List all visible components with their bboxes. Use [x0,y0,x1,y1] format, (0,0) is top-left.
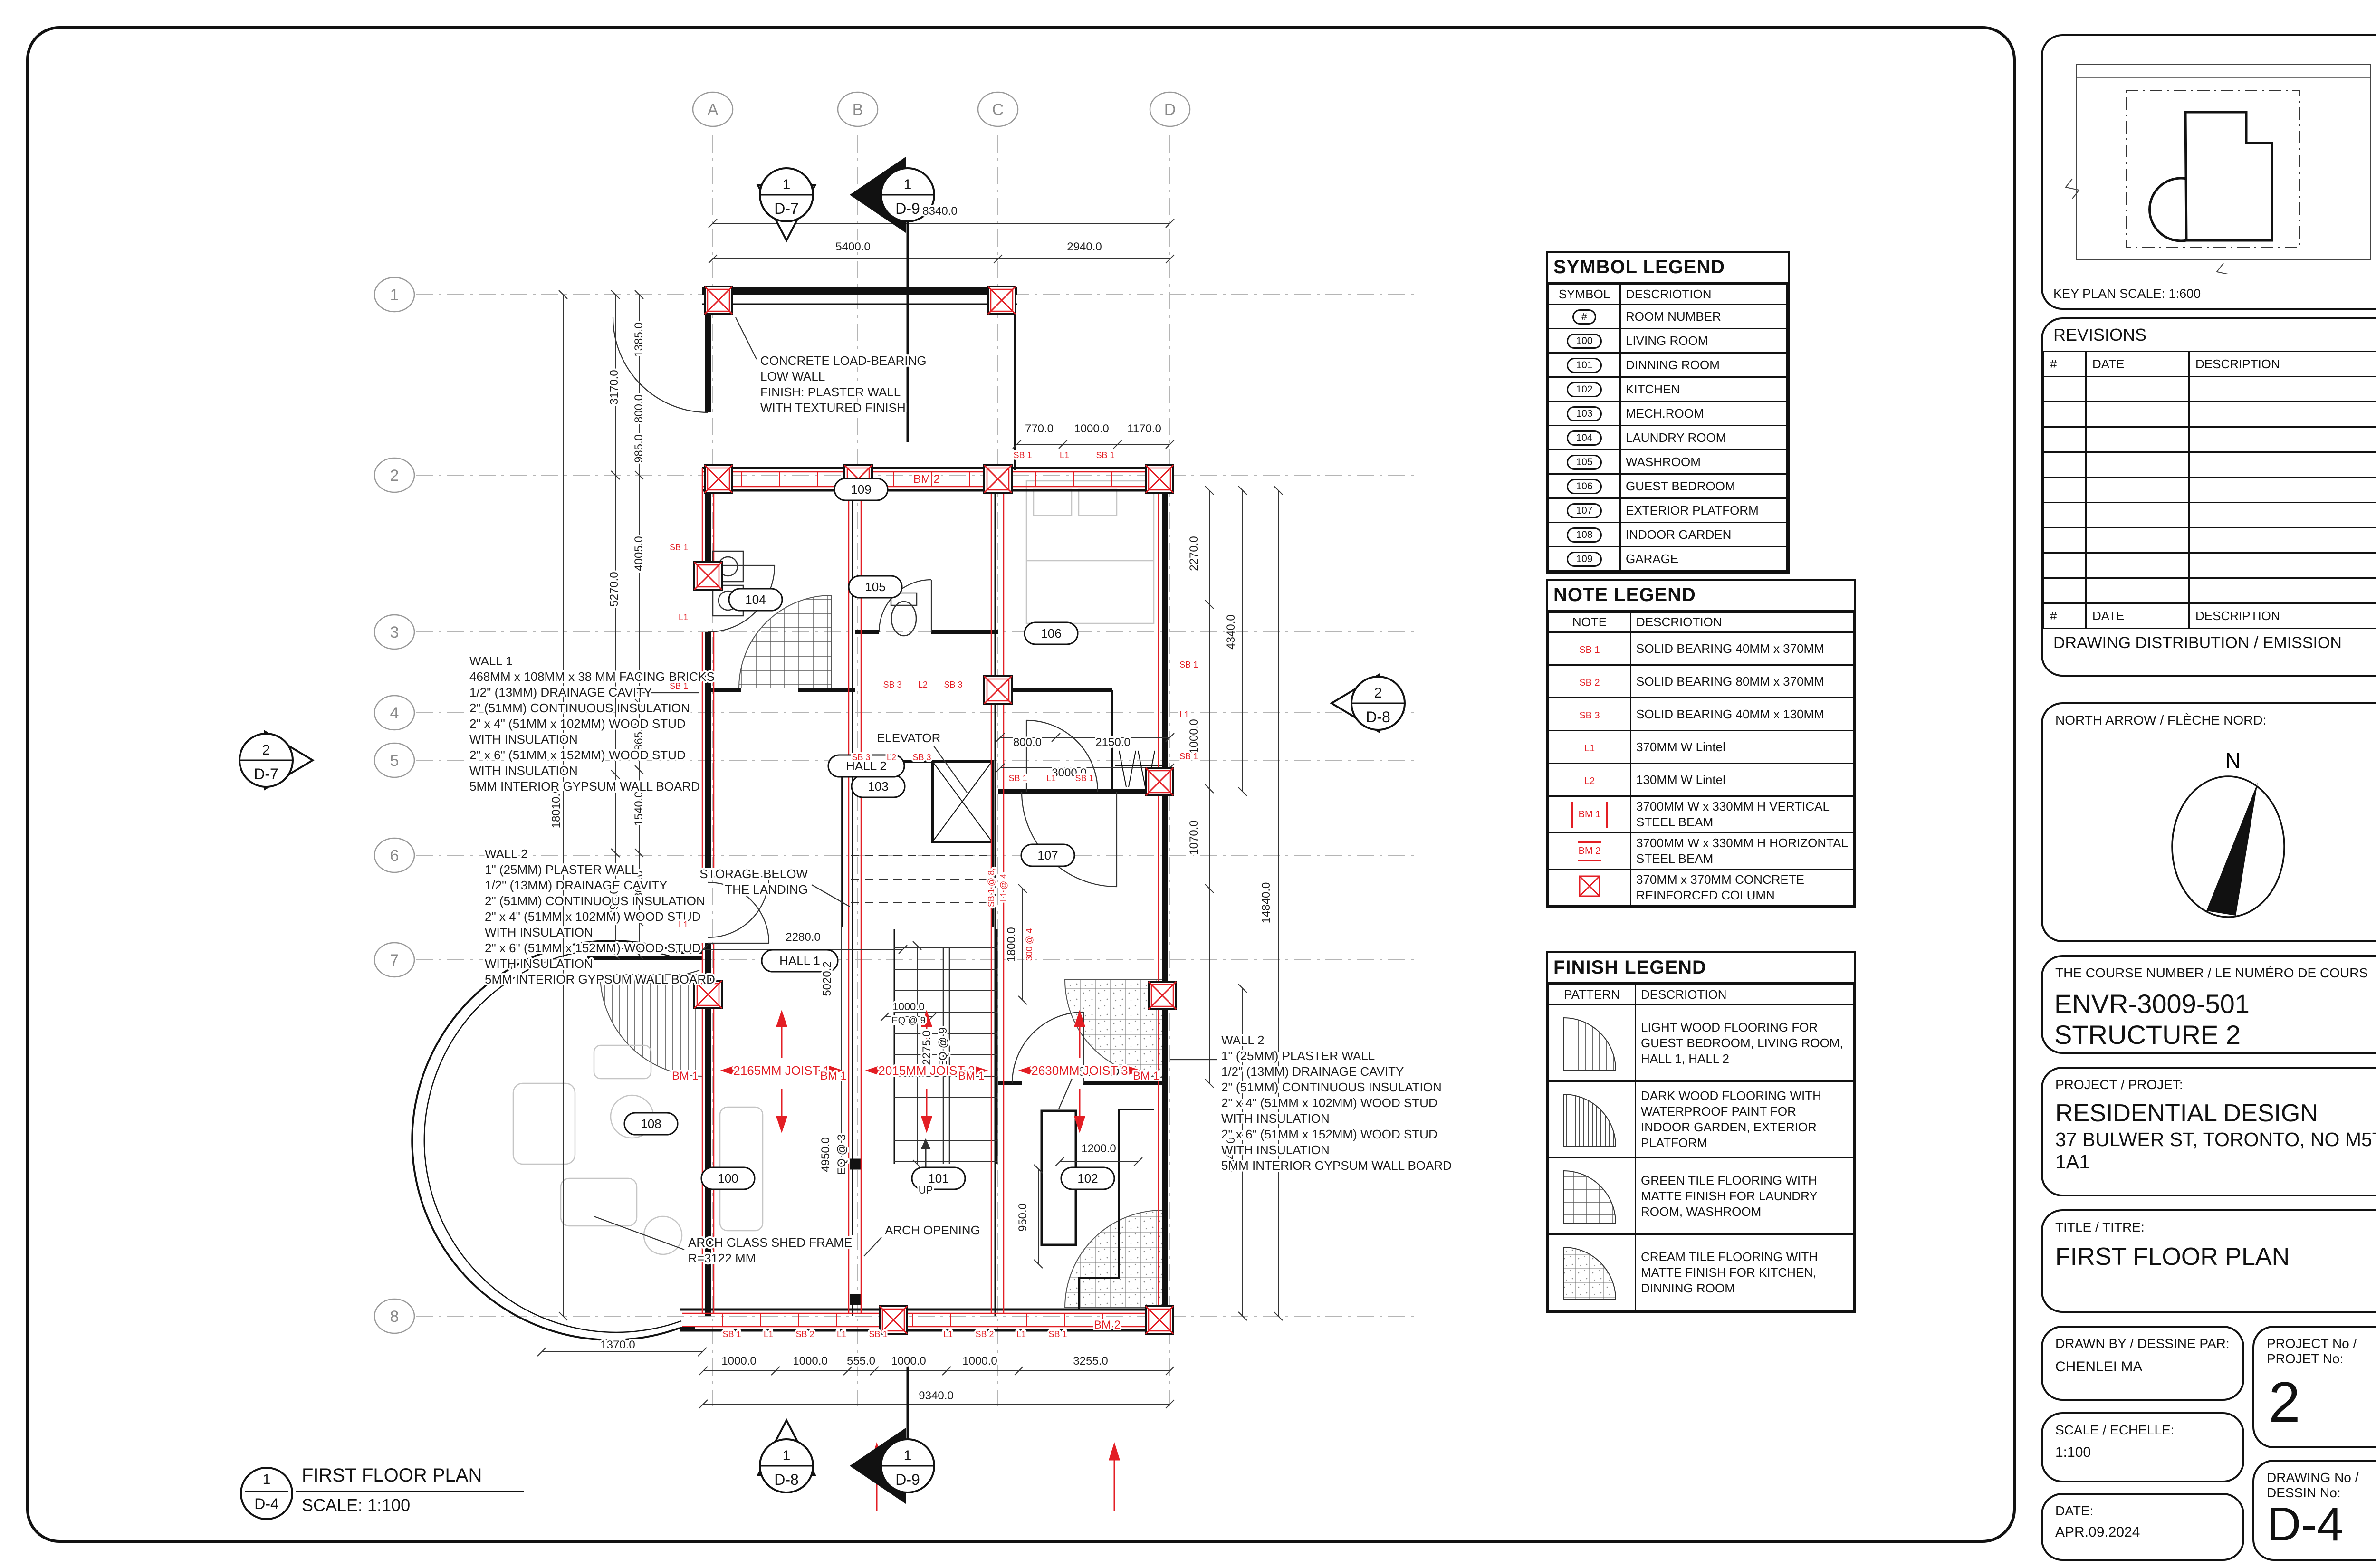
plan-text: 4005.0 [632,536,645,571]
finish-legend: FINISH LEGEND PATTERN DESCRIOTION LIGHT … [1546,951,1856,1313]
plan-text: SB 2 [975,1329,994,1339]
drawing-title: FIRST FLOOR PLAN [2043,1235,2376,1279]
room-tag-label: 101 [928,1171,948,1186]
plan-text: 5270.0 [608,572,621,606]
symbol-row: 108INDOOR GARDEN [1549,523,1787,547]
finish-desc: CREAM TILE FLOORING WITH MATTE FINISH FO… [1636,1234,1854,1311]
plan-text: 4950.0 [819,1137,832,1172]
note-symbol: SB 3 [1549,698,1631,731]
section-marker: 2D-7 [240,732,313,789]
symbol-row: 103MECH.ROOM [1549,402,1787,426]
grid-label: 7 [390,951,399,969]
plan-text: 5MM INTERIOR GYPSUM WALL BOARD [1221,1158,1452,1173]
drawn-by-value: CHENLEI MA [2043,1351,2242,1383]
drawn-by-box: DRAWN BY / DESSINE PAR: CHENLEI MA [2041,1326,2244,1401]
plan-text: LOW WALL [760,369,825,383]
revision-row [2044,528,2376,553]
revision-row [2044,427,2376,452]
plan-text: 1370.0 [600,1339,635,1351]
date-value: APR.09.2024 [2043,1519,2242,1546]
note-desc: SOLID BEARING 40MM x 130MM [1631,698,1854,731]
symbol-row: 105WASHROOM [1549,450,1787,474]
symbol-desc: DINNING ROOM [1620,353,1787,377]
room-number-pill: 105 [1567,455,1601,470]
caption-rule [296,1491,524,1492]
symbol-row: 104LAUNDRY ROOM [1549,426,1787,450]
note-symbol: SB 1 [1549,632,1631,665]
plan-text: SB 1 [1048,1329,1067,1339]
finish-pattern-dark-wood [1561,1087,1623,1149]
revision-row [2044,402,2376,427]
plan-text: L2 [918,680,928,689]
plan-text: WITH INSULATION [1221,1111,1330,1126]
symbol-desc: INDOOR GARDEN [1620,523,1787,547]
plan-text: SB 1 [670,681,688,691]
plan-text: 3255.0 [1073,1355,1108,1367]
room-tag-label: 109 [851,482,871,497]
course-value: ENVR-3009-501 STRUCTURE 2 [2043,981,2376,1058]
grid-label: B [853,101,863,119]
plan-text: WALL 1 [469,654,513,668]
course-label: THE COURSE NUMBER / LE NUMÉRO DE COURS [2043,957,2376,981]
title-box: TITLE / TITRE: FIRST FLOOR PLAN [2041,1209,2376,1313]
north-letter: N [2225,748,2241,773]
symbol-desc: MECH.ROOM [1620,402,1787,426]
room-number-pill: # [1572,309,1596,325]
plan-text: 2" x 6" (51MM x 152MM) WOOD STUD [485,941,701,955]
room-number-pill: 104 [1567,430,1601,446]
plan-text: 5400.0 [835,240,870,253]
caption-scale: SCALE: 1:100 [302,1495,410,1515]
symbol-row: 107EXTERIOR PLATFORM [1549,498,1787,523]
finish-pattern [1549,1005,1636,1081]
red-up-arrow [1110,1444,1119,1511]
plan-text: 2" x 6" (51MM x 152MM) WOOD STUD [1221,1127,1437,1141]
section-marker-sheet: D-9 [895,200,920,217]
plan-text: L1 [1179,710,1189,719]
drawing-number-label: DRAWING No / DESSIN No: [2254,1462,2376,1501]
drawn-by-label: DRAWN BY / DESSINE PAR: [2043,1328,2242,1351]
plan-text: L1 [1046,774,1056,783]
plan-text: 2275.0 [920,1030,933,1065]
plan-text: 2" x 4" (51MM x 102MM) WOOD STUD [1221,1096,1437,1110]
plan-text: ELEVATOR [877,731,940,745]
symbol-row: 106GUEST BEDROOM [1549,474,1787,498]
note-row: SB 2SOLID BEARING 80MM x 370MM [1549,665,1854,698]
plan-text: 1/2" (13MM) DRAINAGE CAVITY [485,878,667,892]
room-tag-label: 100 [718,1171,738,1186]
plan-text: 1/2" (13MM) DRAINAGE CAVITY [469,685,652,699]
section-marker-number: 2 [262,742,270,758]
finish-pattern-light-wood [1561,1010,1623,1073]
note-desc: SOLID BEARING 40MM x 370MM [1631,632,1854,665]
scale-value: 1:100 [2043,1438,2242,1467]
plan-text: STORAGE BELOW [699,867,808,881]
date-box: DATE: APR.09.2024 [2041,1493,2244,1561]
plan-text: BM 1 [672,1070,699,1082]
plan-text: L1 [943,1329,953,1339]
note-symbol: L2 [1549,764,1631,796]
key-plan-caption: KEY PLAN SCALE: 1:600 [2053,287,2201,301]
note-row: L2130MM W Lintel [1549,764,1854,796]
note-symbol: SB 2 [1549,665,1631,698]
symbol-desc: GUEST BEDROOM [1620,474,1787,498]
room-number-pill: 100 [1567,334,1601,349]
plan-text: SB 1 @ 8, [987,868,996,907]
plan-text: 1000.0 [793,1355,827,1367]
plan-text: EQ @ 9 [891,1015,925,1026]
plan-text: 2" (51MM) CONTINUOUS INSULATION [469,701,690,715]
note-symbol: BM 2 [1549,833,1631,870]
symbol-row: #ROOM NUMBER [1549,305,1787,329]
project-address: 37 BULWER ST, TORONTO, NO M5T 1A1 [2043,1128,2376,1173]
plan-text: 5020.2 [821,961,834,996]
grid-label: 6 [390,847,399,865]
key-plan-box: KEY PLAN SCALE: 1:600 [2041,34,2376,310]
finish-pattern [1549,1081,1636,1158]
room-tag-label: 103 [868,779,888,794]
plan-text: 2165MM JOIST 1 [733,1063,830,1078]
grid-label: D [1164,101,1176,119]
project-name: RESIDENTIAL DESIGN [2043,1092,2376,1128]
plan-text: 1540.0 [632,791,645,826]
caption-title: FIRST FLOOR PLAN [302,1465,482,1486]
symbol-desc: WASHROOM [1620,450,1787,474]
plan-text: L1 [1016,1329,1026,1339]
plan-text: 1200.0 [1081,1142,1116,1155]
plan-text: 950.0 [1016,1203,1029,1232]
plan-text: BM 1 [820,1070,847,1082]
drawing-number-value: D-4 [2254,1501,2376,1548]
finish-row: GREEN TILE FLOORING WITH MATTE FINISH FO… [1549,1158,1854,1234]
section-marker-number: 1 [904,1448,912,1463]
plan-text: R=3122 MM [688,1251,756,1265]
section-marker-number: 1 [904,177,912,192]
finish-row: DARK WOOD FLOORING WITH WATERPROOF PAINT… [1549,1081,1854,1158]
plan-text: 2" x 4" (51MM x 102MM) WOOD STUD [469,717,686,731]
symbol-desc: ROOM NUMBER [1620,305,1787,329]
note-row: L1370MM W Lintel [1549,731,1854,764]
note-desc: SOLID BEARING 80MM x 370MM [1631,665,1854,698]
section-marker-sheet: D-7 [254,765,278,783]
plan-text: SB 1 [1075,774,1093,783]
revisions-col-hash: # [2044,352,2086,377]
section-marker: 1D-9 [850,157,934,442]
plan-text: SB 3 [883,680,901,689]
finish-desc: LIGHT WOOD FLOORING FOR GUEST BEDROOM, L… [1636,1005,1854,1081]
plan-text: 14840.0 [1260,882,1273,924]
project-box: PROJECT / PROJET: RESIDENTIAL DESIGN 37 … [2041,1067,2376,1196]
plan-text: L2 [887,753,896,762]
finish-col-header: PATTERN [1549,985,1636,1005]
plan-text: UP [919,1184,933,1196]
symbol-desc: LAUNDRY ROOM [1620,426,1787,450]
plan-text: 3170.0 [608,370,621,404]
plan-text: 1000.0 [721,1355,756,1367]
symbol-row: 100LIVING ROOM [1549,329,1787,353]
plan-text: WITH TEXTURED FINISH [760,401,906,415]
key-plan-drawing [2043,36,2376,274]
plan-text: 1000.0 [892,1001,924,1013]
plan-text: 2" x 4" (51MM x 102MM) WOOD STUD [485,909,701,924]
plan-text: 1000.0 [891,1355,926,1367]
section-marker-sheet: D-7 [774,200,799,217]
grid-label: 2 [390,467,399,485]
scale-box: SCALE / ECHELLE: 1:100 [2041,1412,2244,1482]
finish-pattern [1549,1158,1636,1234]
room-number-pill: 102 [1567,382,1601,397]
finish-desc: DARK WOOD FLOORING WITH WATERPROOF PAINT… [1636,1081,1854,1158]
drawing-number-box: DRAWING No / DESSIN No: D-4 [2252,1460,2376,1561]
plan-text: 1800.0 [1005,927,1018,962]
revisions-box: REVISIONS # DATE DESCRIPTION # DATE DESC… [2041,317,2376,677]
plan-text: L1 [679,612,688,622]
plan-text: 1385.0 [632,322,645,357]
floor-plan: ABCD12345678 109104105106103HALL 2HALL 1… [0,0,2376,1568]
note-desc: 3700MM W x 330MM H HORIZONTAL STEEL BEAM [1631,833,1854,870]
symbol-desc: KITCHEN [1620,377,1787,402]
date-label: DATE: [2043,1495,2242,1519]
symbol-col-header: SYMBOL [1549,285,1620,305]
room-number-pill: 101 [1567,358,1601,373]
plan-text: 2940.0 [1067,240,1102,253]
finish-pattern-green-tile [1561,1163,1623,1226]
plan-text: WITH INSULATION [1221,1143,1330,1157]
finish-pattern [1549,1234,1636,1311]
plan-text: WITH INSULATION [485,925,593,939]
plan-text: 2280.0 [786,931,820,944]
plan-text: EQ @ 3 [835,1134,848,1175]
plan-text: L1 [679,920,688,929]
room-tag-label: 107 [1037,848,1058,862]
plan-text: 1170.0 [1127,422,1161,435]
note-legend-title: NOTE LEGEND [1548,581,1854,612]
course-number-box: THE COURSE NUMBER / LE NUMÉRO DE COURS E… [2041,955,2376,1054]
plan-text: 2" (51MM) CONTINUOUS INSULATION [485,894,705,908]
plan-text: WITH INSULATION [485,956,593,971]
revision-row [2044,553,2376,578]
room-number-pill: 107 [1567,503,1601,518]
plan-text: SB 1 [1096,450,1114,460]
north-compass: N [2043,728,2376,927]
plan-text: L1 [1060,450,1069,460]
caption-number: 1 [245,1469,288,1492]
plan-text: SB 1 [869,1329,887,1339]
note-symbol [1549,870,1631,906]
plan-text: 2150.0 [1095,736,1130,749]
plan-text: 2270.0 [1188,536,1200,571]
plan-text: ARCH OPENING [885,1223,980,1237]
finish-row: LIGHT WOOD FLOORING FOR GUEST BEDROOM, L… [1549,1005,1854,1081]
revisions-col-hash-2: # [2044,603,2086,629]
plan-text: L1 [837,1329,846,1339]
symbol-desc: EXTERIOR PLATFORM [1620,498,1787,523]
revision-row [2044,452,2376,478]
plan-text: ARCH GLASS SHED FRAME [688,1235,852,1250]
revision-row [2044,578,2376,603]
plan-text: 1" (25MM) PLASTER WALL [1221,1049,1375,1063]
project-number-value: 2 [2254,1367,2376,1438]
grid-label: C [992,101,1004,119]
grid-label: 3 [390,623,399,641]
section-marker: 1D-8 [758,1420,815,1492]
plan-text: 555.0 [847,1355,875,1367]
grid-label: 4 [390,704,399,722]
revision-row [2044,478,2376,503]
drawing-distribution-label: DRAWING DISTRIBUTION / EMISSION [2043,629,2376,657]
room-number-pill: 109 [1567,552,1601,567]
revision-row [2044,503,2376,528]
plan-text: 1/2" (13MM) DRAINAGE CAVITY [1221,1064,1404,1079]
note-row: BM 13700MM W x 330MM H VERTICAL STEEL BE… [1549,796,1854,833]
project-number-label: PROJECT No / PROJET No: [2254,1328,2376,1367]
symbol-row: 109GARAGE [1549,547,1787,571]
room-tag-label: 102 [1077,1171,1098,1186]
plan-text: 300 @ 4 [1025,928,1034,961]
plan-text: WITH INSULATION [469,764,578,778]
plan-text: BM 1 [1133,1070,1159,1082]
plan-text: SB 1 [1008,774,1027,783]
revisions-col-date: DATE [2086,352,2189,377]
note-desc-header: DESCRIOTION [1631,612,1854,632]
grid-label: A [708,101,719,119]
grid-label: 1 [390,286,399,304]
note-row: SB 3SOLID BEARING 40MM x 130MM [1549,698,1854,731]
note-col-header: NOTE [1549,612,1631,632]
plan-text: SB 1 [722,1329,741,1339]
plan-text: SB 1 [1179,660,1198,669]
room-tag-label: 104 [745,593,766,607]
plan-text: 800.0 [632,394,645,423]
note-legend: NOTE LEGEND NOTE DESCRIOTION SB 1SOLID B… [1546,579,1856,908]
plan-text: WALL 2 [485,847,528,861]
grid-label: 5 [390,752,399,770]
plan-text: SB 3 [852,753,870,762]
plan-text: L1 @ 4 [999,874,1008,901]
room-tag-label: 105 [865,580,885,594]
note-desc: 370MM x 370MM CONCRETE REINFORCED COLUMN [1631,870,1854,906]
note-row: BM 23700MM W x 330MM H HORIZONTAL STEEL … [1549,833,1854,870]
plan-text: SB 1 [1013,450,1032,460]
north-arrow-label: NORTH ARROW / FLÈCHE NORD: [2043,704,2376,728]
plan-text: 1000.0 [1074,422,1109,435]
project-label: PROJECT / PROJET: [2043,1069,2376,1092]
plan-text: BM 1 [958,1070,985,1082]
plan-text: 2" (51MM) CONTINUOUS INSULATION [1221,1080,1442,1094]
revisions-col-desc: DESCRIPTION [2189,352,2376,377]
plan-caption: 1 D-4 FIRST FLOOR PLAN SCALE: 1:100 [240,1461,535,1532]
revisions-title: REVISIONS [2043,319,2376,351]
section-marker: 2D-8 [1332,675,1405,732]
plan-text: 1000.0 [962,1355,997,1367]
finish-pattern-cream-tile [1561,1240,1623,1302]
plan-text: BM 2 [1094,1319,1121,1331]
revisions-col-desc-2: DESCRIPTION [2189,603,2376,629]
plan-text: SB 1 [670,543,688,552]
plan-text: WITH INSULATION [469,732,578,746]
plan-text: SB 3 [944,680,962,689]
plan-text: 2630MM JOIST 3 [1031,1063,1128,1078]
note-symbol: L1 [1549,731,1631,764]
room-tag-label: 106 [1041,626,1061,641]
plan-text: BM 2 [913,473,940,486]
symbol-row: 101DINNING ROOM [1549,353,1787,377]
note-desc: 3700MM W x 330MM H VERTICAL STEEL BEAM [1631,796,1854,833]
section-marker: 1D-7 [758,168,815,240]
plan-text: 1000.0 [1188,719,1200,754]
section-marker-number: 1 [783,177,791,192]
plan-text: WALL 2 [1221,1033,1265,1047]
symbol-legend: SYMBOL LEGEND SYMBOL DESCRIOTION #ROOM N… [1546,251,1790,574]
room-tag-label: 108 [641,1117,661,1131]
title-label: TITLE / TITRE: [2043,1211,2376,1235]
revisions-col-date-2: DATE [2086,603,2189,629]
symbol-legend-title: SYMBOL LEGEND [1548,253,1788,284]
room-number-pill: 106 [1567,479,1601,494]
finish-row: CREAM TILE FLOORING WITH MATTE FINISH FO… [1549,1234,1854,1311]
plan-text: 4340.0 [1225,614,1237,649]
room-number-pill: 103 [1567,406,1601,421]
symbol-row: 102KITCHEN [1549,377,1787,402]
note-row: SB 1SOLID BEARING 40MM x 370MM [1549,632,1854,665]
plan-text: SB 3 [912,753,931,762]
north-arrow-box: NORTH ARROW / FLÈCHE NORD: N [2041,702,2376,942]
finish-desc-header: DESCRIOTION [1636,985,1854,1005]
plan-text: EQ @ 9 [937,1027,949,1068]
section-marker-sheet: D-8 [774,1471,799,1488]
plan-text: 1070.0 [1188,820,1200,855]
room-number-pill: 108 [1567,527,1601,543]
drawing-sheet: ABCD12345678 109104105106103HALL 2HALL 1… [0,0,2376,1568]
plan-text: THE LANDING [725,882,808,897]
section-marker-sheet: D-9 [895,1471,920,1488]
plan-text: SB 2 [795,1329,814,1339]
plan-text: 2" x 6" (51MM x 152MM) WOOD STUD [469,748,686,762]
section-marker-number: 2 [1374,685,1382,701]
finish-desc: GREEN TILE FLOORING WITH MATTE FINISH FO… [1636,1158,1854,1234]
finish-legend-title: FINISH LEGEND [1548,953,1854,984]
plan-text: L1 [764,1329,773,1339]
note-row: 370MM x 370MM CONCRETE REINFORCED COLUMN [1549,870,1854,906]
plan-text: SB 1 [1179,752,1198,761]
caption-bubble: 1 D-4 [240,1467,293,1520]
symbol-desc: LIVING ROOM [1620,329,1787,353]
section-marker-number: 1 [783,1448,791,1463]
caption-sheet: D-4 [242,1492,291,1516]
scale-label: SCALE / ECHELLE: [2043,1414,2242,1438]
plan-text: 800.0 [1013,736,1042,749]
plan-text: 5MM INTERIOR GYPSUM WALL BOARD [469,779,700,794]
plan-text: 1" (25MM) PLASTER WALL [485,862,638,877]
symbol-desc-header: DESCRIOTION [1620,285,1787,305]
plan-text: 8340.0 [922,205,957,218]
plan-text: 985.0 [632,434,645,463]
revision-row [2044,377,2376,402]
section-marker-sheet: D-8 [1366,708,1390,726]
section-marker: 1D-9 [850,1357,934,1504]
plan-text: 5MM INTERIOR GYPSUM WALL BOARD [485,972,715,986]
plan-text: CONCRETE LOAD-BEARING [760,354,927,368]
concrete-column-symbol [1577,874,1602,899]
project-number-box: PROJECT No / PROJET No: 2 [2252,1326,2376,1448]
plan-text: 770.0 [1025,422,1054,435]
note-desc: 130MM W Lintel [1631,764,1854,796]
grid-label: 8 [390,1308,399,1326]
note-symbol: BM 1 [1549,796,1631,833]
plan-text: 9340.0 [919,1389,953,1402]
symbol-desc: GARAGE [1620,547,1787,571]
plan-text: FINISH: PLASTER WALL [760,385,901,399]
